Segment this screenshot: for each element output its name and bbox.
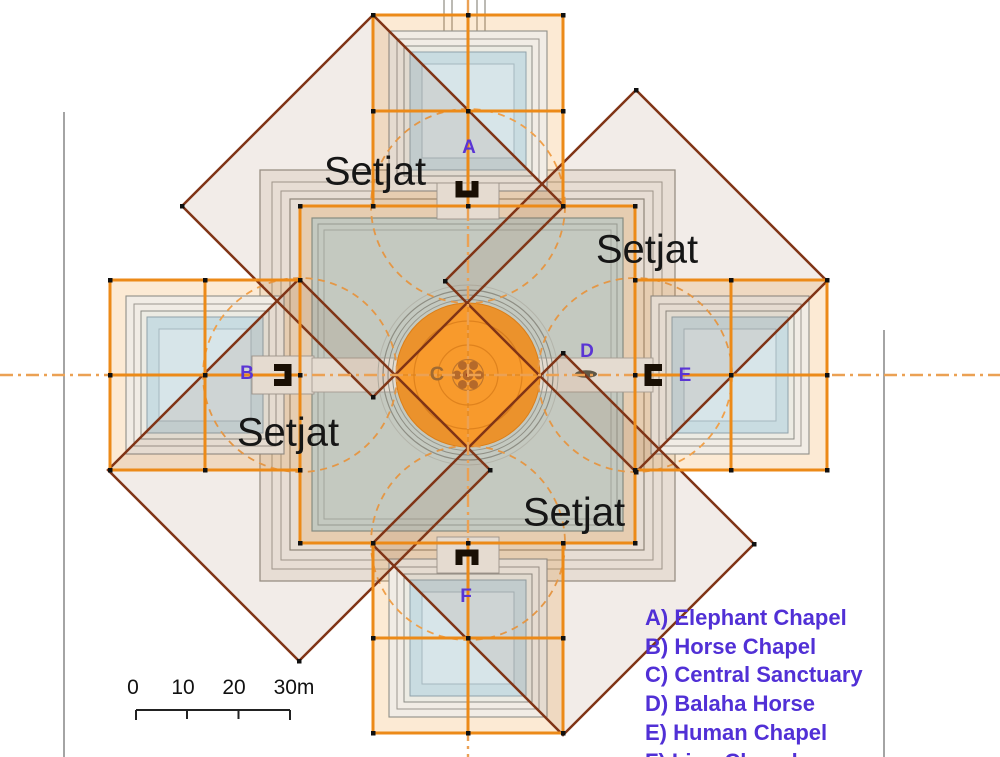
marker-balaha-horse: D [580,341,594,363]
marker-horse-chapel: B [240,363,254,385]
legend-item-balaha-horse: D) Balaha Horse [645,690,863,719]
legend-item-lion-chapel: F) Lion Chapel [645,748,863,757]
legend-item-horse-chapel: B) Horse Chapel [645,633,863,662]
scale-bar [136,710,290,720]
marker-central-sanctuary: C [430,364,444,387]
legend-item-human-chapel: E) Human Chapel [645,719,863,748]
setjat-label-top-left: Setjat [324,150,426,195]
scale-tick-label-10: 10 [171,676,194,700]
scale-tick-label-20: 20 [222,676,245,700]
scale-tick-label-0: 0 [127,676,139,700]
scale-tick-label-30m: 30m [274,676,315,700]
setjat-label-bottom-right: Setjat [523,491,625,536]
marker-human-chapel: E [679,365,692,387]
legend-item-elephant-chapel: A) Elephant Chapel [645,604,863,633]
legend-item-central-sanctuary: C) Central Sanctuary [645,661,863,690]
temple-plan-figure: Setjat Setjat Setjat Setjat A B C D E F … [0,0,1000,757]
setjat-label-top-right: Setjat [596,228,698,273]
legend: A) Elephant Chapel B) Horse Chapel C) Ce… [645,604,863,757]
marker-elephant-chapel: A [462,137,476,159]
marker-lion-chapel: F [460,586,472,608]
setjat-label-bottom-left: Setjat [237,411,339,456]
